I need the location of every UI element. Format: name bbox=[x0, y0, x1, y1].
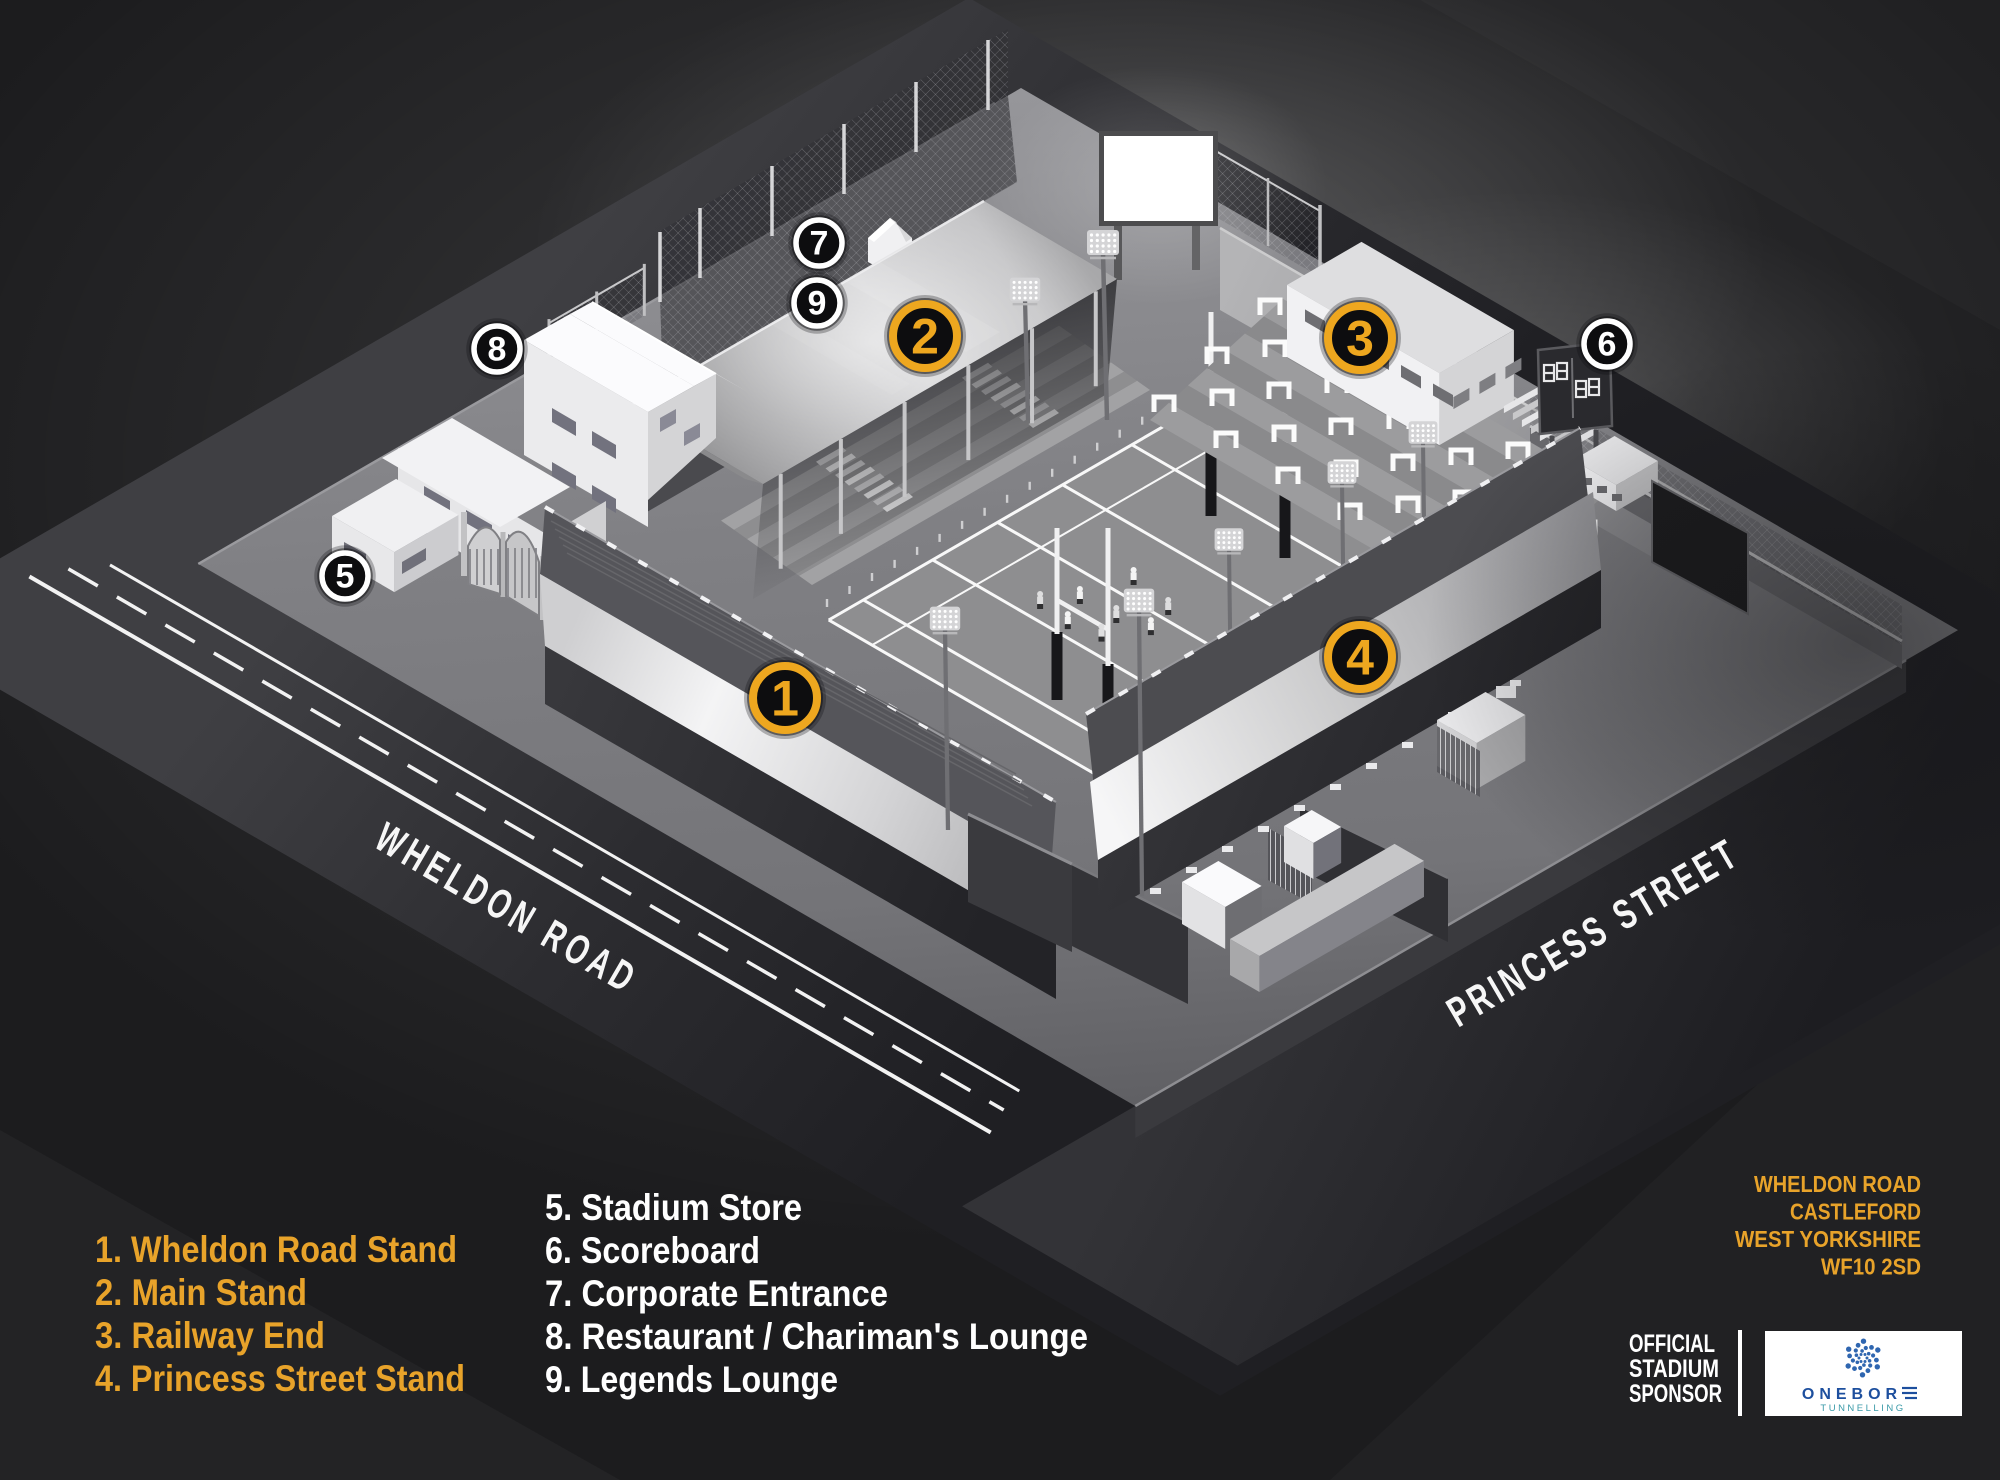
svg-text:6: 6 bbox=[1598, 326, 1617, 364]
svg-text:4: 4 bbox=[1346, 629, 1374, 685]
svg-text:3: 3 bbox=[1346, 310, 1374, 366]
svg-text:9. Legends Lounge: 9. Legends Lounge bbox=[545, 1359, 838, 1400]
svg-text:2. Main Stand: 2. Main Stand bbox=[95, 1272, 307, 1313]
svg-text:3. Railway End: 3. Railway End bbox=[95, 1315, 325, 1356]
svg-text:WF10 2SD: WF10 2SD bbox=[1821, 1254, 1921, 1280]
svg-text:1: 1 bbox=[771, 670, 799, 726]
svg-text:WEST YORKSHIRE: WEST YORKSHIRE bbox=[1735, 1226, 1921, 1252]
svg-text:4. Princess Street Stand: 4. Princess Street Stand bbox=[95, 1358, 465, 1399]
svg-text:TUNNELLING: TUNNELLING bbox=[1820, 1403, 1905, 1414]
svg-text:7. Corporate Entrance: 7. Corporate Entrance bbox=[545, 1273, 888, 1314]
svg-text:8: 8 bbox=[488, 331, 507, 369]
svg-text:OFFICIAL: OFFICIAL bbox=[1629, 1330, 1715, 1358]
svg-text:SPONSOR: SPONSOR bbox=[1629, 1380, 1722, 1408]
svg-text:1. Wheldon Road Stand: 1. Wheldon Road Stand bbox=[95, 1229, 457, 1270]
svg-text:7: 7 bbox=[810, 225, 829, 263]
svg-text:9: 9 bbox=[808, 285, 827, 323]
svg-text:5. Stadium Store: 5. Stadium Store bbox=[545, 1187, 802, 1228]
svg-text:STADIUM: STADIUM bbox=[1629, 1355, 1719, 1383]
svg-text:WHELDON ROAD: WHELDON ROAD bbox=[1754, 1171, 1921, 1197]
svg-text:ONEBOR: ONEBOR bbox=[1802, 1386, 1902, 1403]
svg-text:5: 5 bbox=[336, 558, 355, 596]
svg-text:8. Restaurant / Chariman's Lou: 8. Restaurant / Chariman's Lounge bbox=[545, 1316, 1088, 1357]
svg-text:CASTLEFORD: CASTLEFORD bbox=[1790, 1199, 1921, 1225]
svg-text:2: 2 bbox=[911, 308, 939, 364]
svg-text:6. Scoreboard: 6. Scoreboard bbox=[545, 1230, 760, 1271]
